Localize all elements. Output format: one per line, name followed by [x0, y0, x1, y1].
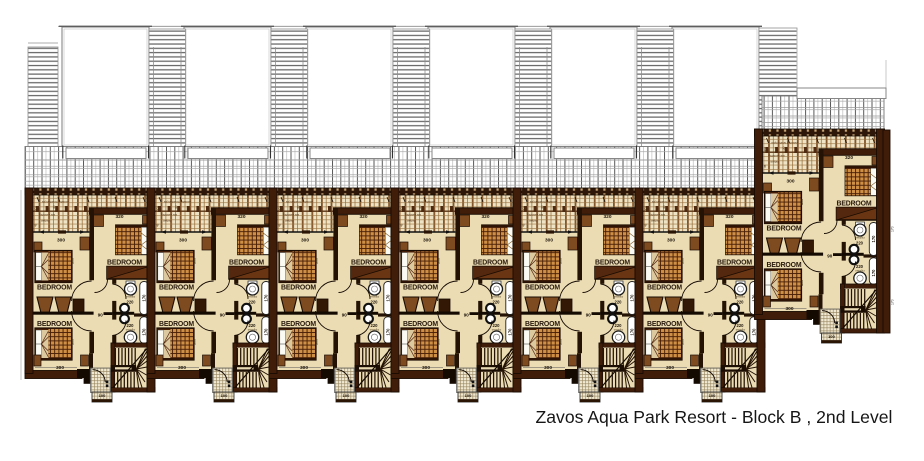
svg-text:Zavos Aqua Park Resort - Block: Zavos Aqua Park Resort - Block B , 2nd L… [536, 407, 893, 427]
svg-text:170: 170 [891, 299, 895, 305]
svg-text:170: 170 [891, 226, 895, 232]
